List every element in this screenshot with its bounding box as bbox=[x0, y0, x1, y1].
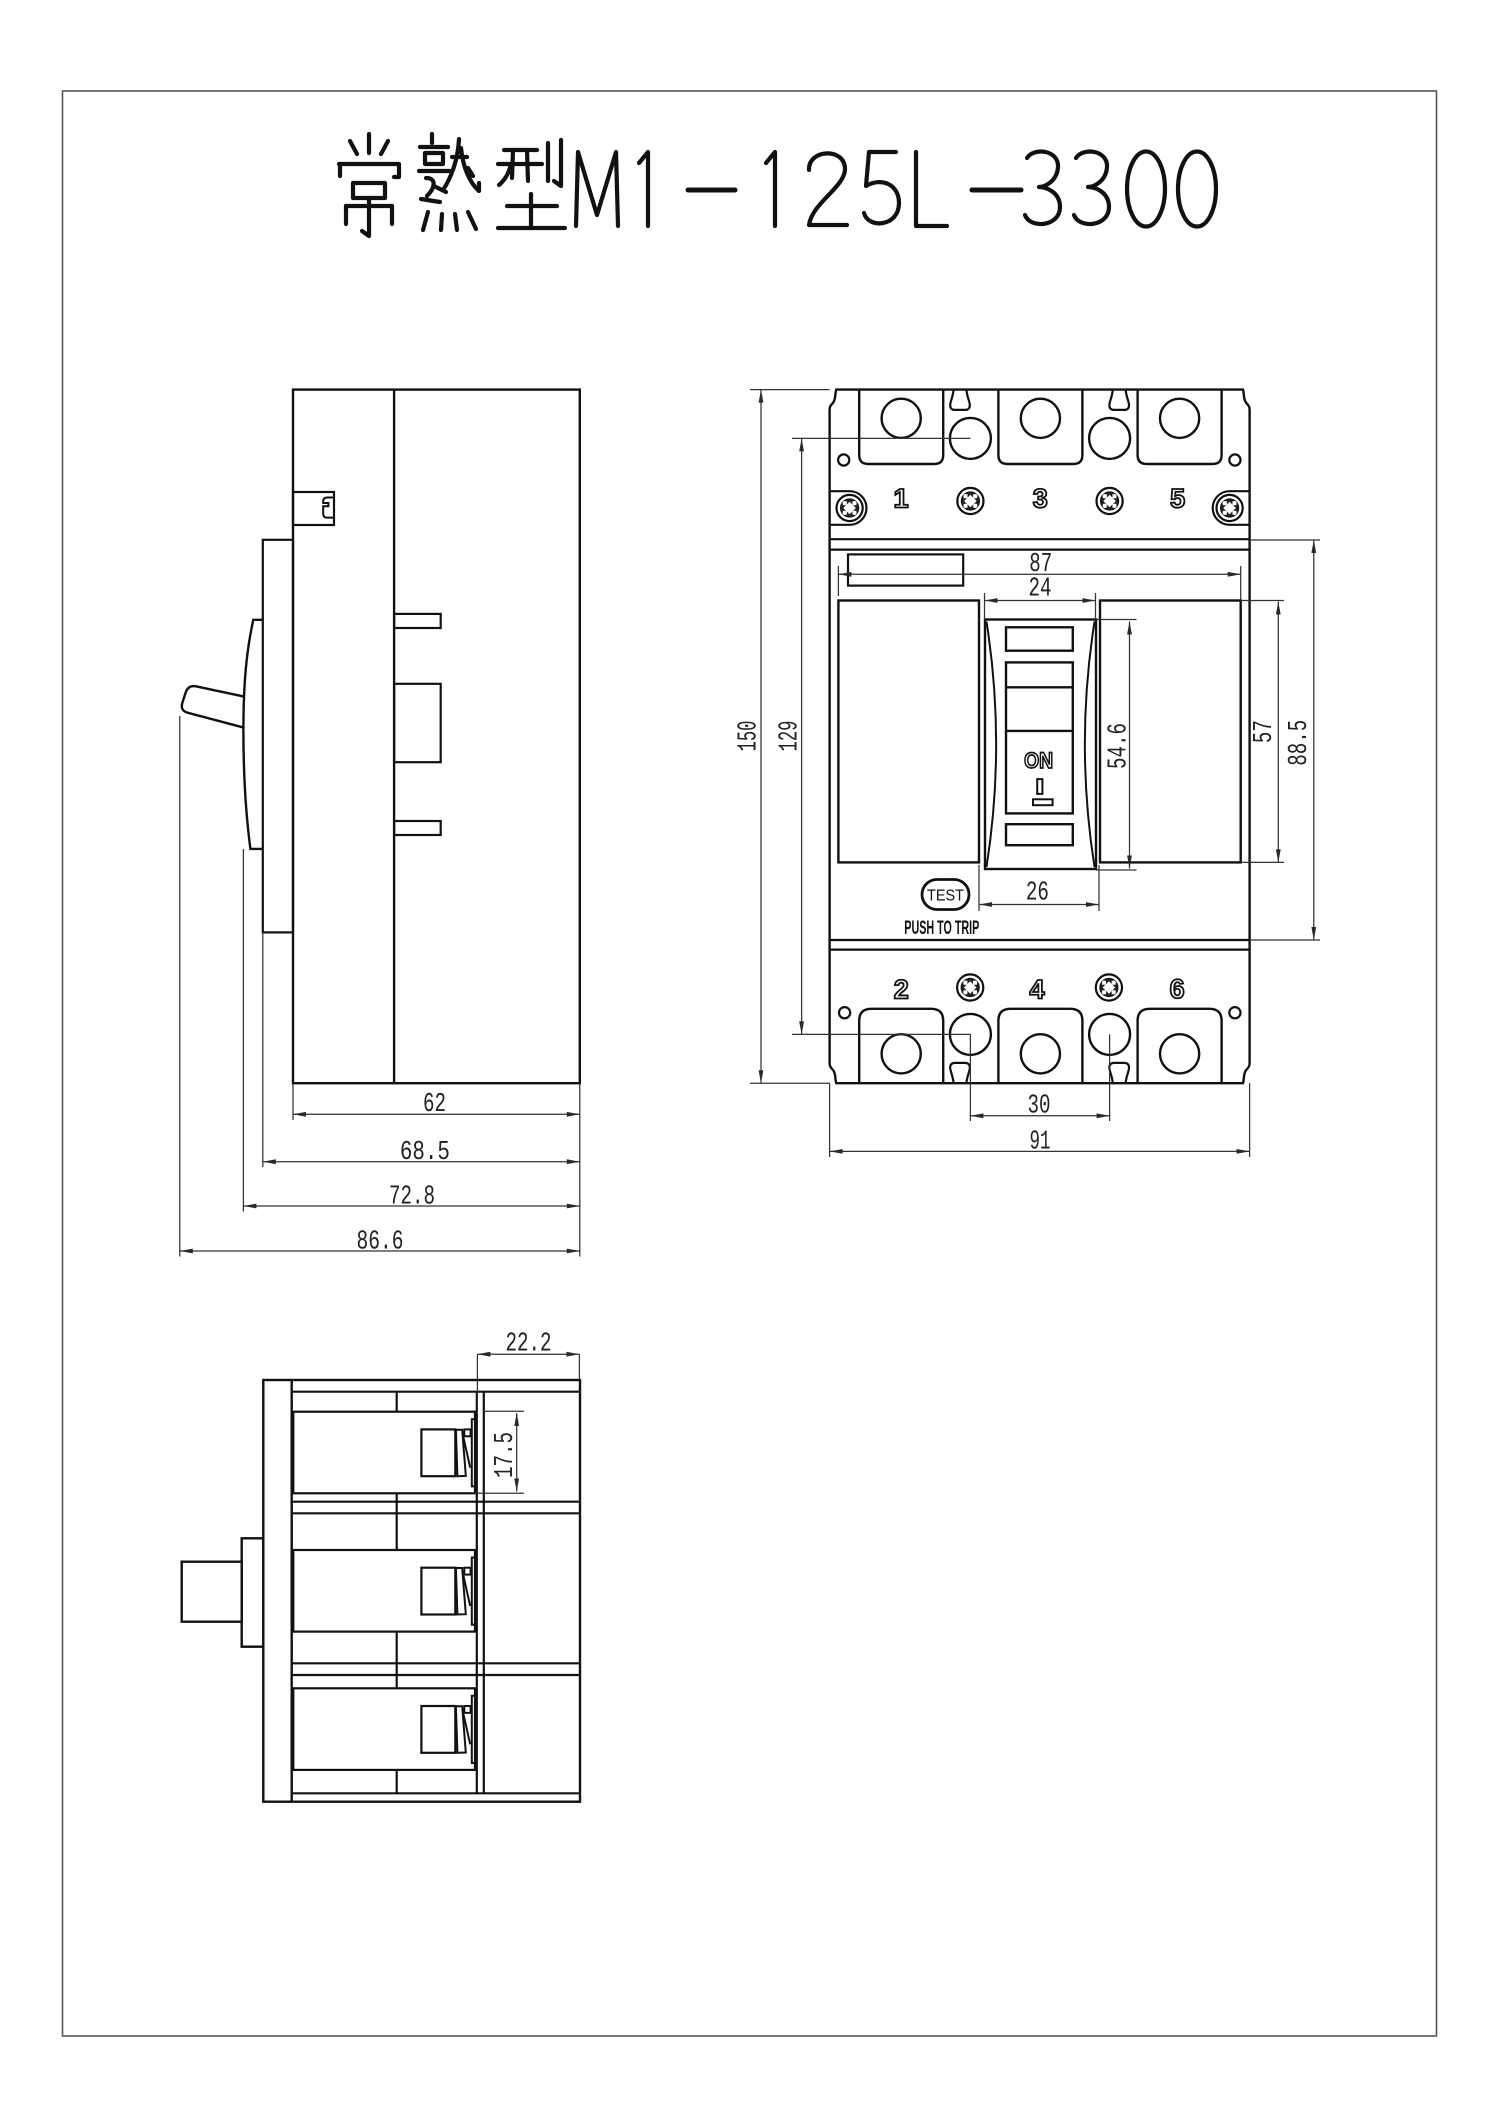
svg-text:88.5: 88.5 bbox=[1285, 720, 1315, 766]
svg-text:22.2: 22.2 bbox=[506, 1330, 552, 1360]
svg-text:PUSH TO TRIP: PUSH TO TRIP bbox=[904, 917, 979, 939]
svg-text:ON: ON bbox=[1024, 748, 1053, 773]
svg-text:17.5: 17.5 bbox=[491, 1432, 521, 1478]
svg-text:91: 91 bbox=[1030, 1128, 1051, 1158]
svg-text:68.5: 68.5 bbox=[400, 1138, 450, 1168]
svg-text:1: 1 bbox=[893, 484, 908, 514]
svg-text:57: 57 bbox=[1250, 720, 1280, 743]
svg-text:30: 30 bbox=[1028, 1091, 1051, 1121]
svg-text:54.6: 54.6 bbox=[1105, 723, 1135, 769]
svg-text:129: 129 bbox=[776, 721, 806, 752]
svg-text:3: 3 bbox=[1033, 484, 1048, 514]
svg-text:4: 4 bbox=[1029, 975, 1044, 1005]
svg-text:26: 26 bbox=[1026, 879, 1049, 909]
svg-text:24: 24 bbox=[1029, 575, 1052, 605]
svg-text:62: 62 bbox=[423, 1090, 446, 1120]
svg-text:150: 150 bbox=[735, 721, 765, 752]
svg-text:2: 2 bbox=[894, 975, 909, 1005]
svg-text:5: 5 bbox=[1170, 484, 1185, 514]
svg-text:86.6: 86.6 bbox=[357, 1228, 404, 1258]
svg-text:72.8: 72.8 bbox=[389, 1183, 435, 1213]
svg-text:6: 6 bbox=[1170, 974, 1185, 1004]
svg-text:TEST: TEST bbox=[927, 888, 964, 905]
